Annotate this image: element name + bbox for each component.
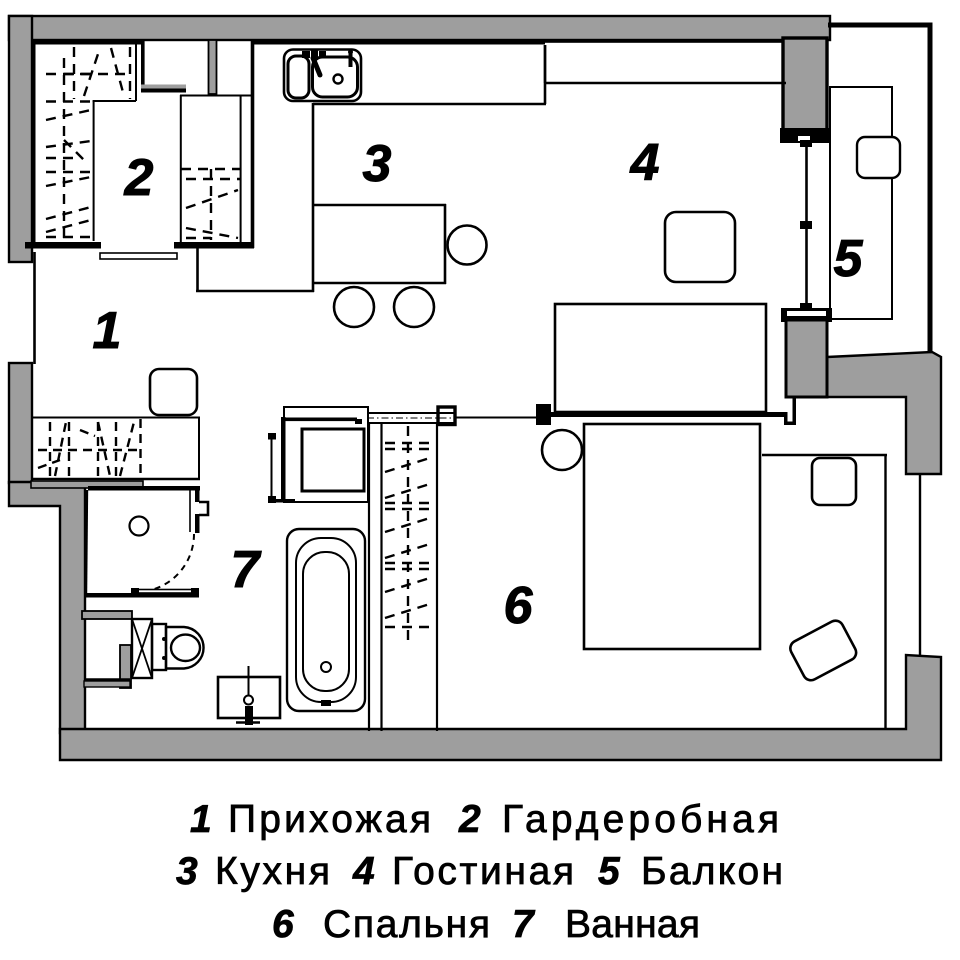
- svg-text:6: 6: [504, 577, 534, 635]
- svg-text:Балкон: Балкон: [641, 850, 783, 893]
- svg-text:1: 1: [93, 302, 122, 360]
- svg-text:7: 7: [512, 903, 536, 946]
- svg-text:3: 3: [363, 135, 392, 193]
- svg-text:4: 4: [352, 850, 375, 893]
- svg-text:2: 2: [124, 149, 154, 207]
- svg-text:Гостиная: Гостиная: [392, 850, 574, 893]
- svg-text:Гардеробная: Гардеробная: [502, 798, 779, 841]
- svg-text:1: 1: [190, 798, 212, 841]
- svg-text:3: 3: [176, 850, 198, 893]
- svg-text:Ванная: Ванная: [565, 903, 700, 946]
- svg-text:5: 5: [834, 230, 864, 288]
- svg-text:4: 4: [630, 134, 660, 192]
- svg-text:Спальня: Спальня: [323, 903, 490, 946]
- svg-text:7: 7: [231, 541, 262, 599]
- svg-text:2: 2: [458, 798, 481, 841]
- svg-text:5: 5: [598, 850, 621, 893]
- svg-text:Кухня: Кухня: [215, 850, 330, 893]
- svg-text:6: 6: [272, 903, 294, 946]
